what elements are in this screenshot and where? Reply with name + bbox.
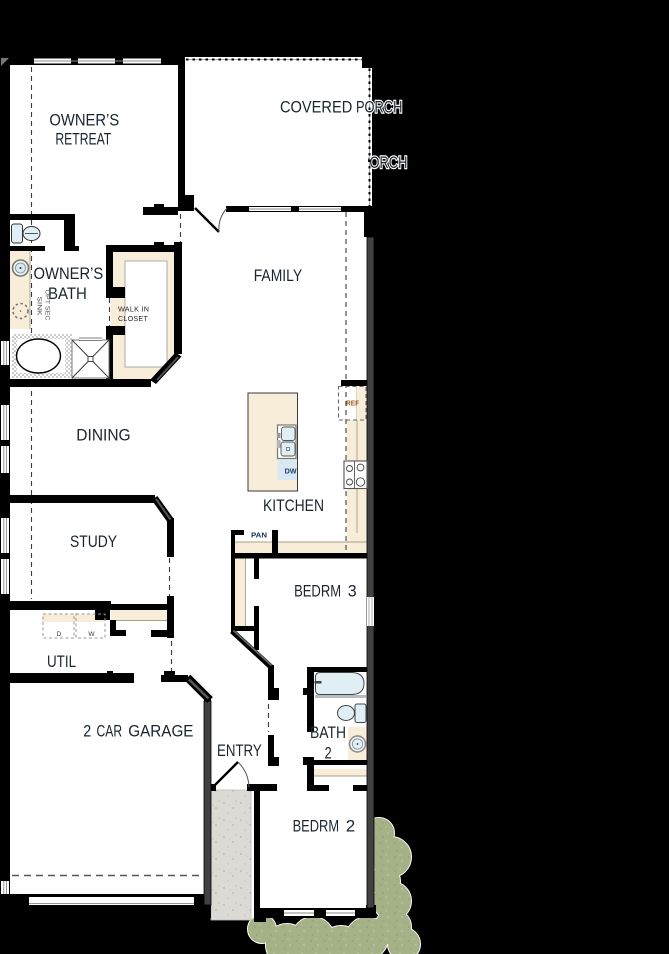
svg-text:COVERED: COVERED [280, 99, 352, 117]
svg-text:GARAGE: GARAGE [128, 722, 193, 741]
svg-text:2: 2 [325, 744, 332, 763]
svg-text:2: 2 [83, 723, 91, 741]
svg-text:SINK: SINK [36, 297, 43, 317]
svg-text:W: W [88, 631, 95, 638]
svg-text:BATH: BATH [310, 724, 346, 743]
svg-text:DINING: DINING [76, 426, 130, 445]
svg-text:RETREAT: RETREAT [55, 131, 111, 149]
svg-text:OPT SEC: OPT SEC [44, 290, 51, 321]
svg-text:CAR: CAR [97, 723, 123, 741]
svg-text:PAN: PAN [251, 531, 267, 540]
svg-text:ENTRY: ENTRY [217, 742, 262, 761]
svg-text:KITCHEN: KITCHEN [263, 497, 324, 516]
svg-text:PORCH: PORCH [356, 98, 402, 117]
svg-text:DW: DW [285, 466, 298, 475]
svg-text:BATH: BATH [48, 284, 87, 303]
svg-text:CLOSET: CLOSET [118, 314, 148, 323]
svg-text:WALK IN: WALK IN [118, 304, 149, 313]
svg-text:FAMILY: FAMILY [254, 267, 303, 286]
svg-text:STUDY: STUDY [70, 533, 117, 552]
svg-text:OWNER’S: OWNER’S [49, 112, 119, 130]
svg-text:REF: REF [346, 401, 360, 408]
svg-text:BEDRM: BEDRM [294, 582, 341, 601]
svg-text:D: D [57, 631, 62, 638]
svg-text:OWNER’S: OWNER’S [34, 265, 104, 283]
svg-text:UTIL: UTIL [47, 653, 76, 672]
svg-text:2: 2 [346, 817, 355, 836]
svg-text:3: 3 [348, 582, 357, 601]
svg-text:BEDRM: BEDRM [293, 817, 339, 836]
